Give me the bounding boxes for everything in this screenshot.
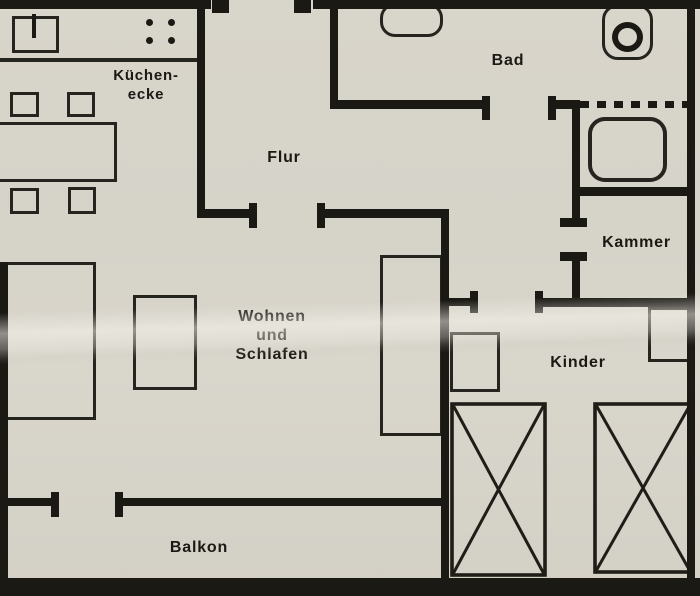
floorplan-page: Küchen- ecke Flur Bad Kammer Wohnen und … <box>0 0 700 596</box>
room-label-living-line2: und <box>224 326 320 345</box>
room-label-living-line1: Wohnen <box>224 307 320 326</box>
room-label-chamber: Kammer <box>594 233 679 252</box>
room-label-kitchen: Küchen- ecke <box>98 66 194 104</box>
room-label-kitchen-line1: Küchen- <box>98 66 194 85</box>
room-label-kids: Kinder <box>543 353 613 372</box>
room-label-living: Wohnen und Schlafen <box>224 307 320 364</box>
room-label-bath: Bad <box>483 51 533 70</box>
room-label-living-line3: Schlafen <box>224 345 320 364</box>
room-label-kitchen-line2: ecke <box>98 85 194 104</box>
room-label-balcony: Balkon <box>164 538 234 557</box>
room-label-hall: Flur <box>254 148 314 167</box>
labels-layer: Küchen- ecke Flur Bad Kammer Wohnen und … <box>0 0 700 596</box>
